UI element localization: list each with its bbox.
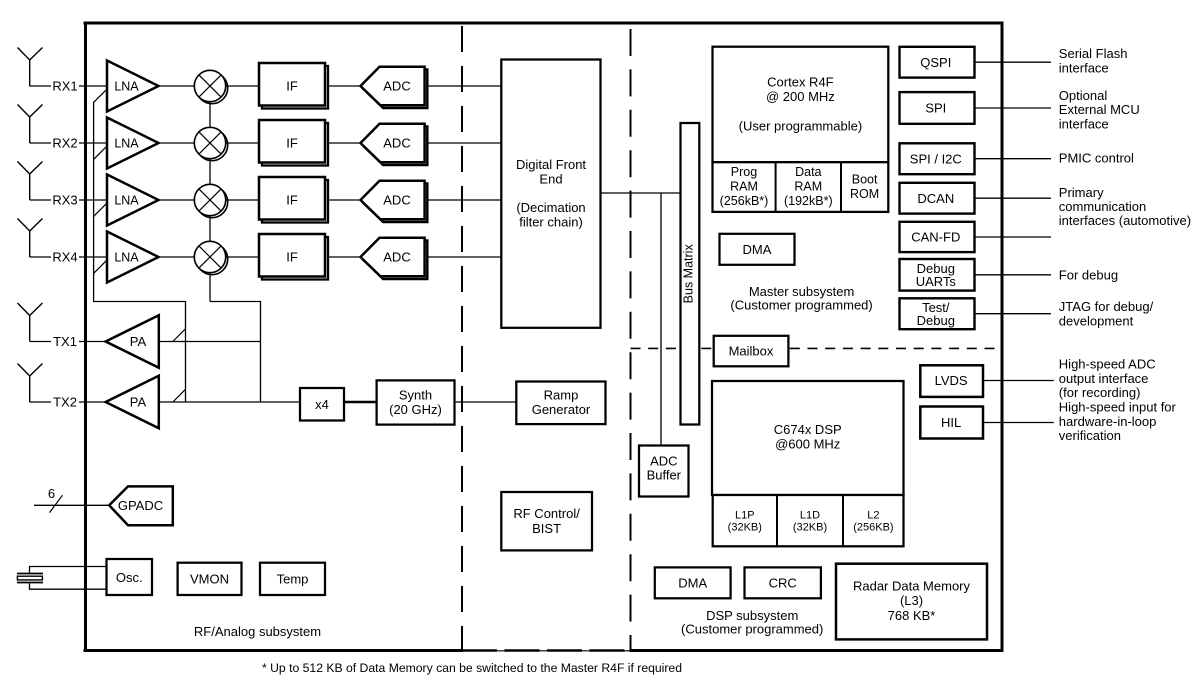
- svg-text:ADC: ADC: [650, 453, 677, 468]
- svg-text:ADC: ADC: [383, 250, 410, 265]
- svg-text:VMON: VMON: [190, 571, 229, 586]
- svg-text:* Up to 512 KB of Data Memory: * Up to 512 KB of Data Memory can be swi…: [262, 661, 682, 675]
- svg-text:verification: verification: [1059, 428, 1121, 443]
- svg-text:HIL: HIL: [941, 415, 961, 430]
- svg-text:TX1: TX1: [53, 334, 77, 349]
- svg-text:(L3): (L3): [900, 593, 923, 608]
- svg-text:ADC: ADC: [383, 79, 410, 94]
- svg-text:(Customer programmed): (Customer programmed): [730, 298, 872, 313]
- svg-text:(20 GHz): (20 GHz): [389, 402, 442, 417]
- svg-text:Generator: Generator: [532, 402, 591, 417]
- svg-text:(Decimation: (Decimation: [516, 200, 585, 215]
- svg-text:SPI / I2C: SPI / I2C: [910, 151, 962, 166]
- svg-text:hardware-in-loop: hardware-in-loop: [1059, 414, 1157, 429]
- svg-text:Prog: Prog: [731, 165, 757, 179]
- svg-text:Boot: Boot: [852, 173, 878, 187]
- svg-text:LNA: LNA: [114, 250, 139, 264]
- svg-text:JTAG for debug/: JTAG for debug/: [1059, 299, 1154, 314]
- svg-text:RF Control/: RF Control/: [513, 506, 580, 521]
- svg-text:@600 MHz: @600 MHz: [775, 436, 840, 451]
- svg-text:RF/Analog subsystem: RF/Analog subsystem: [194, 624, 321, 639]
- svg-text:Primary: Primary: [1059, 185, 1104, 200]
- svg-text:(User programmable): (User programmable): [739, 119, 863, 134]
- svg-text:IF: IF: [286, 250, 298, 265]
- svg-text:LVDS: LVDS: [935, 373, 968, 388]
- svg-text:interface: interface: [1059, 116, 1109, 131]
- svg-text:PA: PA: [130, 395, 147, 410]
- svg-text:Cortex R4F: Cortex R4F: [767, 74, 834, 89]
- svg-text:Optional: Optional: [1059, 88, 1108, 103]
- svg-text:C674x DSP: C674x DSP: [774, 422, 842, 437]
- svg-text:768 KB*: 768 KB*: [888, 608, 936, 623]
- svg-text:RX3: RX3: [52, 193, 77, 208]
- svg-text:IF: IF: [286, 136, 298, 151]
- svg-text:Synth: Synth: [399, 388, 432, 403]
- svg-text:GPADC: GPADC: [118, 498, 163, 513]
- svg-text:RX1: RX1: [52, 79, 77, 94]
- svg-text:BIST: BIST: [532, 521, 561, 536]
- svg-text:(256kB*): (256kB*): [720, 194, 769, 208]
- svg-text:ADC: ADC: [383, 193, 410, 208]
- svg-text:Bus Matrix: Bus Matrix: [682, 244, 696, 304]
- svg-text:LNA: LNA: [114, 79, 139, 93]
- svg-text:(32KB): (32KB): [728, 521, 762, 533]
- svg-text:End: End: [539, 172, 562, 187]
- svg-text:output interface: output interface: [1059, 371, 1149, 386]
- svg-text:(Customer programmed): (Customer programmed): [681, 622, 823, 637]
- svg-text:(32KB): (32KB): [793, 521, 827, 533]
- svg-text:RAM: RAM: [730, 180, 758, 194]
- svg-text:LNA: LNA: [114, 136, 139, 150]
- svg-text:Buffer: Buffer: [647, 468, 682, 483]
- svg-text:Ramp: Ramp: [544, 388, 579, 403]
- svg-text:Serial Flash: Serial Flash: [1059, 46, 1128, 61]
- svg-text:For debug: For debug: [1059, 267, 1118, 282]
- svg-text:Mailbox: Mailbox: [729, 344, 774, 359]
- svg-text:PA: PA: [130, 334, 147, 349]
- svg-text:Digital Front: Digital Front: [516, 157, 586, 172]
- svg-text:6: 6: [48, 486, 55, 501]
- svg-text:ADC: ADC: [383, 136, 410, 151]
- svg-text:x4: x4: [315, 397, 329, 412]
- svg-text:L1D: L1D: [800, 509, 820, 521]
- svg-text:filter chain): filter chain): [519, 214, 583, 229]
- svg-text:(for recording): (for recording): [1059, 385, 1141, 400]
- svg-text:ROM: ROM: [850, 187, 879, 201]
- svg-text:High-speed input for: High-speed input for: [1059, 400, 1177, 415]
- svg-text:LNA: LNA: [114, 193, 139, 207]
- svg-text:RX2: RX2: [52, 136, 77, 151]
- svg-text:communication: communication: [1059, 199, 1146, 214]
- svg-text:IF: IF: [286, 79, 298, 94]
- svg-text:CAN-FD: CAN-FD: [911, 230, 960, 245]
- svg-text:(256KB): (256KB): [853, 521, 893, 533]
- svg-text:development: development: [1059, 313, 1134, 328]
- svg-text:@ 200 MHz: @ 200 MHz: [766, 89, 835, 104]
- svg-text:L1P: L1P: [735, 509, 755, 521]
- svg-text:IF: IF: [286, 193, 298, 208]
- svg-text:RX4: RX4: [52, 250, 77, 265]
- svg-text:PMIC control: PMIC control: [1059, 150, 1134, 165]
- svg-text:High-speed ADC: High-speed ADC: [1059, 357, 1156, 372]
- svg-text:Temp: Temp: [277, 571, 309, 586]
- svg-text:L2: L2: [867, 509, 879, 521]
- svg-text:SPI: SPI: [925, 101, 946, 116]
- svg-text:TX2: TX2: [53, 395, 77, 410]
- svg-text:Radar Data Memory: Radar Data Memory: [853, 579, 971, 594]
- svg-text:Data: Data: [795, 165, 821, 179]
- svg-text:(192kB*): (192kB*): [784, 194, 833, 208]
- svg-text:interface: interface: [1059, 60, 1109, 75]
- svg-text:QSPI: QSPI: [920, 55, 951, 70]
- svg-text:DMA: DMA: [743, 242, 772, 257]
- svg-text:interfaces (automotive): interfaces (automotive): [1059, 213, 1191, 228]
- svg-text:RAM: RAM: [794, 180, 822, 194]
- svg-text:DCAN: DCAN: [917, 191, 954, 206]
- svg-text:Osc.: Osc.: [116, 570, 143, 585]
- svg-text:External MCU: External MCU: [1059, 102, 1140, 117]
- svg-text:Debug: Debug: [917, 313, 955, 328]
- svg-text:DMA: DMA: [678, 575, 707, 590]
- svg-text:UARTs: UARTs: [916, 274, 957, 289]
- svg-text:CRC: CRC: [769, 575, 797, 590]
